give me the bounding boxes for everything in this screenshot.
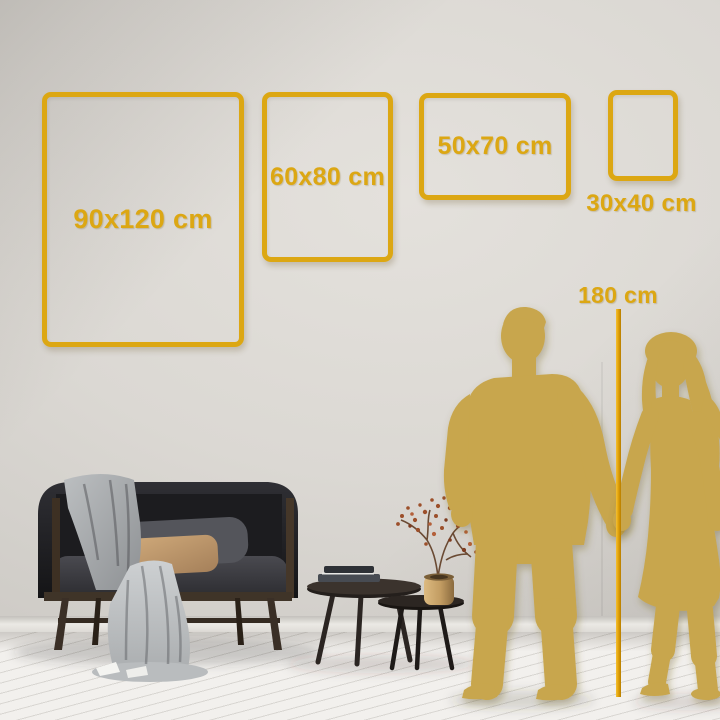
height-measure-line [616, 309, 621, 697]
woman-silhouette [613, 332, 720, 700]
couple-layer [0, 0, 720, 720]
man-silhouette [444, 307, 626, 700]
size-guide-scene: 90x120 cm 60x80 cm 50x70 cm 30x40 cm 180… [0, 0, 720, 720]
